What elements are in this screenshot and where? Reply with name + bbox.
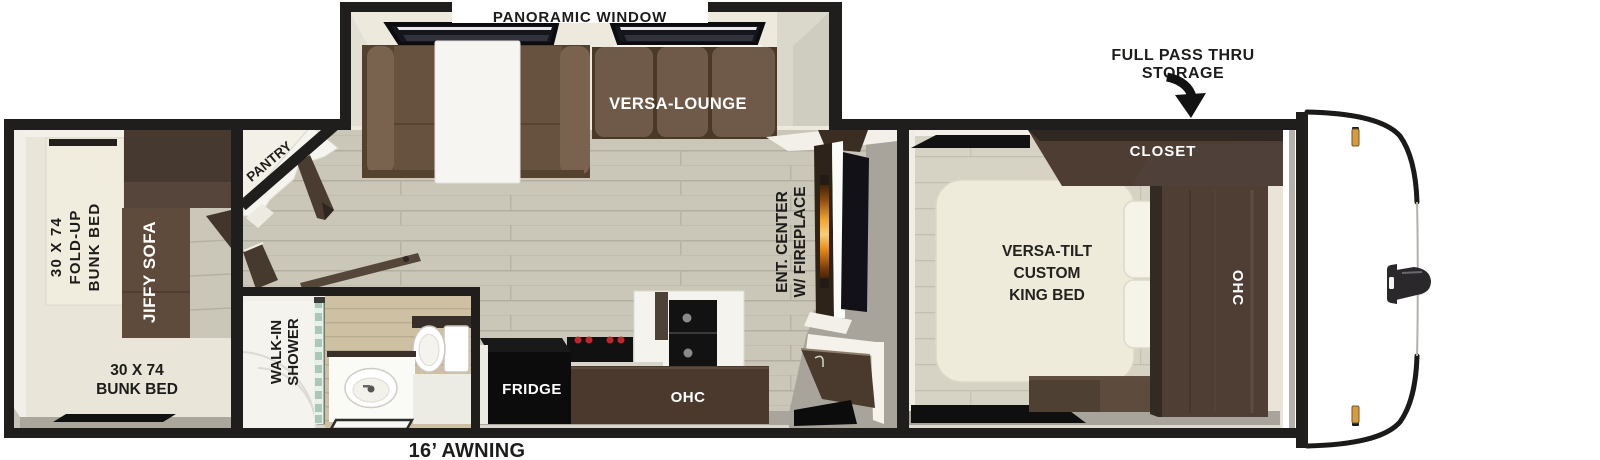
svg-text:VERSA-LOUNGE: VERSA-LOUNGE [609, 95, 747, 113]
svg-text:WALK-IN: WALK-IN [268, 320, 285, 384]
svg-text:OHC: OHC [671, 389, 706, 406]
svg-text:PANORAMIC WINDOW: PANORAMIC WINDOW [493, 9, 667, 26]
svg-text:30 X 74: 30 X 74 [48, 217, 65, 277]
svg-text:30 X 74: 30 X 74 [110, 362, 164, 379]
svg-text:SHOWER: SHOWER [285, 318, 302, 386]
svg-text:FULL PASS THRU: FULL PASS THRU [1111, 47, 1254, 64]
svg-text:BUNK BED: BUNK BED [86, 203, 103, 292]
svg-text:JIFFY SOFA: JIFFY SOFA [140, 221, 159, 323]
svg-text:W/ FIREPLACE: W/ FIREPLACE [792, 186, 809, 297]
svg-text:FOLD-UP: FOLD-UP [67, 209, 84, 284]
svg-text:KING BED: KING BED [1009, 287, 1085, 304]
svg-text:FRIDGE: FRIDGE [502, 381, 562, 398]
svg-text:CLOSET: CLOSET [1130, 143, 1197, 160]
svg-text:VERSA-TILT: VERSA-TILT [1002, 243, 1093, 260]
svg-text:BUNK BED: BUNK BED [96, 381, 178, 398]
svg-text:CUSTOM: CUSTOM [1014, 265, 1081, 282]
svg-text:ENT. CENTER: ENT. CENTER [774, 191, 791, 293]
svg-text:OHC: OHC [1229, 270, 1246, 306]
svg-text:16’ AWNING: 16’ AWNING [409, 440, 526, 460]
